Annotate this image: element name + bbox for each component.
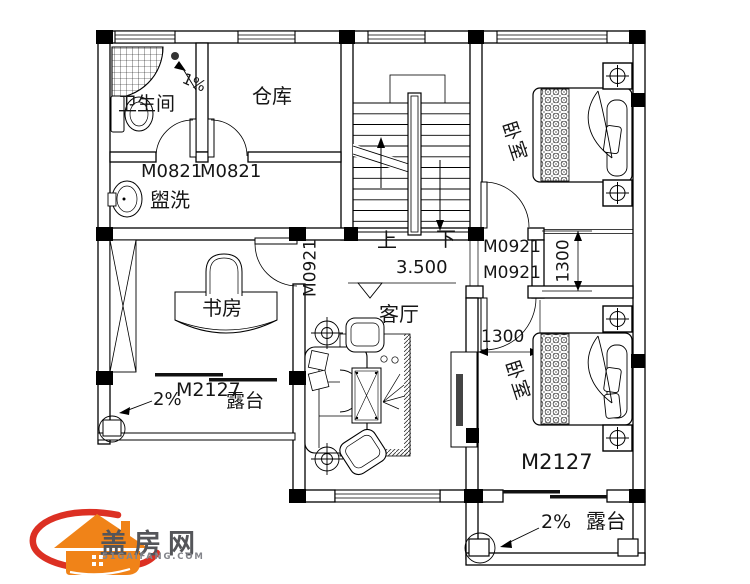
room-label-storage: 仓库 <box>252 86 292 106</box>
dimension-vertical: 1300 <box>556 239 573 282</box>
slope-label-terrace-left: 2% <box>153 391 182 409</box>
shower <box>112 47 163 98</box>
slope-label-terrace-right: 2% <box>541 513 571 532</box>
stairs-down-label: 下 <box>436 229 456 249</box>
door-label-bedroom-top: M0921 <box>483 239 541 256</box>
floor-level-label: 3.500 <box>396 259 448 277</box>
study-closet <box>110 240 136 372</box>
desk-chair <box>206 254 242 296</box>
stairs-up-label: 上 <box>377 230 397 250</box>
room-label-study: 书房 <box>202 298 242 318</box>
room-label-laundry: 盥洗 <box>150 190 190 210</box>
door-label-study: M0921 <box>303 239 320 297</box>
staircase <box>353 75 470 235</box>
floor-plan-page: 卫生间 仓库 M0821 M0821 盥洗 书房 M0921 上 下 3.500… <box>0 0 750 584</box>
level-marker <box>348 283 456 298</box>
room-label-terrace-left: 露台 <box>226 392 264 411</box>
room-label-terrace-right: 露台 <box>586 511 626 531</box>
table-decor <box>381 356 405 409</box>
door-label-bedroom-terrace: M2127 <box>521 452 593 473</box>
plant-top <box>311 317 343 349</box>
cushion <box>604 393 621 418</box>
dimension-horizontal: 1300 <box>481 329 524 346</box>
sink <box>108 181 142 217</box>
bed-bottom <box>533 333 632 425</box>
door-label-bath: M0821 <box>141 163 202 181</box>
floor-plan-drawing <box>0 0 750 584</box>
room-label-bathroom: 卫生间 <box>118 95 175 114</box>
stair-up-arrow <box>377 137 385 148</box>
coffee-table <box>352 368 381 423</box>
room-label-living: 客厅 <box>379 304 419 324</box>
bed-top <box>533 88 632 182</box>
door-label-bedroom-bottom: M0921 <box>483 265 541 282</box>
floor-drain-dot <box>171 52 179 60</box>
cushion <box>603 125 622 154</box>
stair-handrail <box>408 93 421 235</box>
door-label-storage: M0821 <box>200 163 261 181</box>
tv <box>456 374 463 426</box>
logo-site-text: 51GAIFANG.COM <box>102 552 205 562</box>
